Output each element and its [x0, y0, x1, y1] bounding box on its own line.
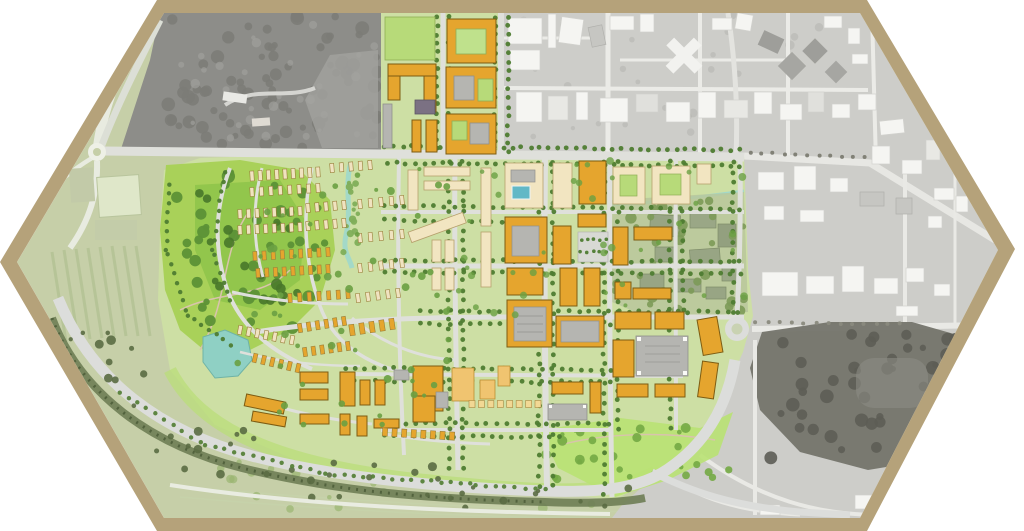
map-layers — [17, 9, 998, 518]
campus-master-plan-map: Campus district master plan aerial map i… — [0, 0, 1024, 531]
master-plan-figure: Campus district master plan aerial map i… — [0, 0, 1024, 531]
